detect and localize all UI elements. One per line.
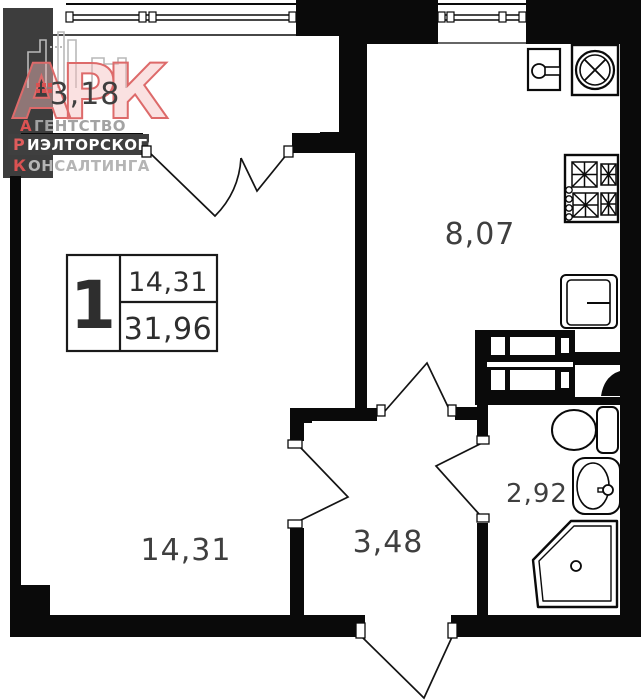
living-room-door-swing [297,447,348,522]
floor-plan: 1 14,31 31,96 АРК А ГЕНТСТВО Р ИЭЛТОРСКО… [0,0,641,700]
stove-icon [565,155,618,222]
balcony-door-swing [151,154,241,216]
toilet-icon [552,407,618,453]
logo-line3-initial: К [13,156,26,175]
washing-machine-icon [572,45,618,95]
kitchen-area-label: 8,07 [445,217,516,252]
entry-door-swing [363,637,452,698]
kitchen-sink-icon [528,49,560,90]
rooms-count: 1 [70,267,116,344]
apartment-info-box: 1 14,31 31,96 [67,255,217,351]
logo-line2-rest: ИЭЛТОРСКОГО [27,136,161,154]
refrigerator-icon [561,275,617,328]
hallway-area-label: 3,48 [353,525,424,560]
logo-line3-rest: ОНСАЛТИНГА [28,157,150,175]
logo-line1-rest: ГЕНТСТВО [34,117,126,135]
windows [53,4,526,43]
logo-line1-initial: А [20,117,32,135]
bathroom-area-label: 2,92 [506,479,568,509]
living-room-area-label: 14,31 [141,533,232,568]
living-area-value: 14,31 [128,267,208,298]
total-area-value: 31,96 [124,312,212,347]
balcony-casement-swing [241,154,287,191]
fixtures [528,45,620,607]
shower-icon [533,521,617,607]
logo-line2-initial: Р [13,135,25,154]
wash-basin-icon [573,458,620,514]
balcony-area-label: 3,18 [50,77,121,112]
kitchen-door-swing [385,363,450,411]
floor-plan-svg: 1 14,31 31,96 АРК А ГЕНТСТВО Р ИЭЛТОРСКО… [0,0,641,700]
bathroom-door-swing [436,443,482,514]
